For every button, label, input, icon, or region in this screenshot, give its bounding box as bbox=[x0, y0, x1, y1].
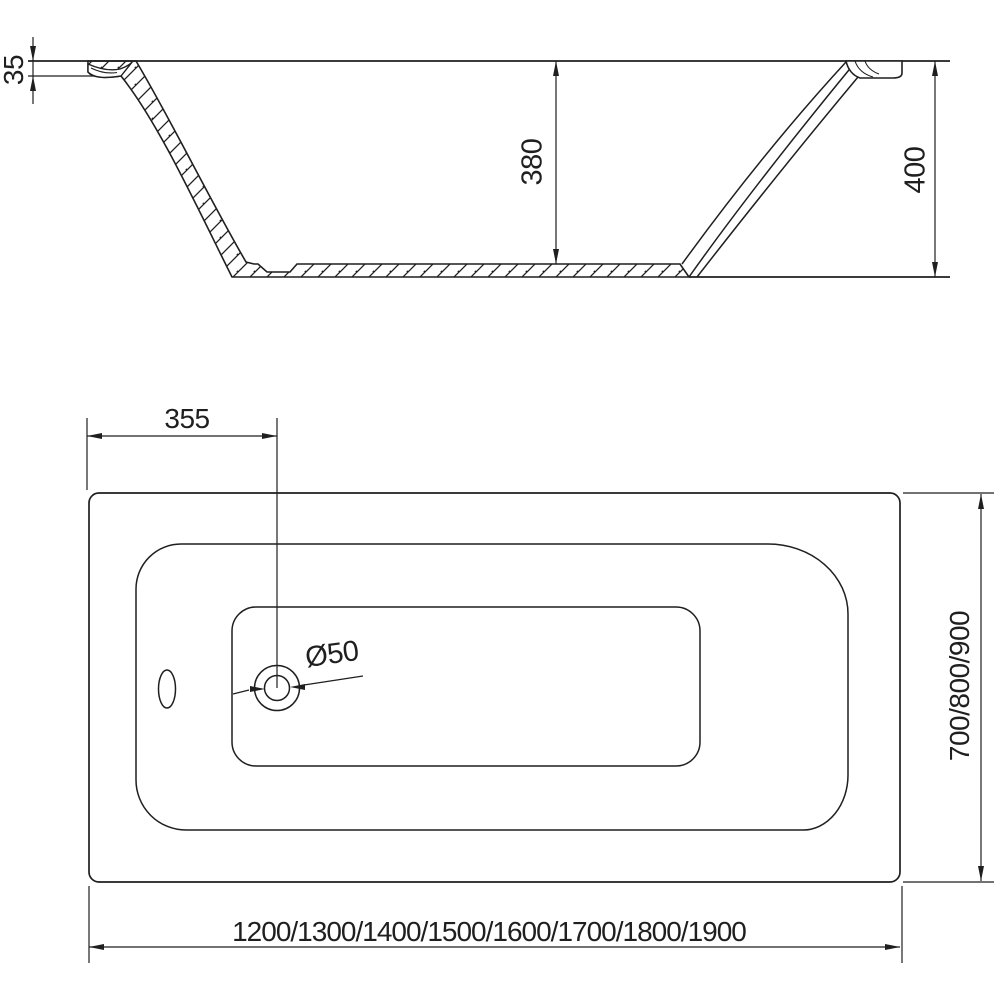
right-wall-projection-lines bbox=[682, 62, 858, 277]
drain-offset-dimension-label: 355 bbox=[164, 405, 209, 433]
inner-depth-dimension-label: 380 bbox=[519, 139, 548, 186]
drawing-svg bbox=[0, 0, 1000, 1000]
tub-inner-rim-edge bbox=[136, 544, 848, 830]
tub-shell-section-hatched bbox=[88, 61, 689, 277]
overflow-opening bbox=[159, 670, 176, 708]
drain-diameter-dimension-label: Ø50 bbox=[304, 637, 361, 673]
bathtub-drawing-canvas: 35 380 400 355 Ø50 700/800/900 1200/1300… bbox=[0, 0, 1000, 1000]
dim-inner-depth-380 bbox=[553, 61, 559, 264]
tub-outer-edge bbox=[89, 493, 900, 882]
length-options-dimension-label: 1200/1300/1400/1500/1600/1700/1800/1900 bbox=[232, 918, 746, 946]
section-view bbox=[28, 37, 950, 277]
total-height-dimension-label: 400 bbox=[902, 147, 931, 194]
dim-rim-drop-35 bbox=[30, 37, 36, 104]
right-rim-face bbox=[846, 61, 902, 78]
dim-total-height-400 bbox=[932, 61, 938, 277]
rim-drop-dimension-label: 35 bbox=[0, 55, 28, 85]
plan-view bbox=[87, 418, 994, 963]
width-options-dimension-label: 700/800/900 bbox=[946, 611, 974, 761]
